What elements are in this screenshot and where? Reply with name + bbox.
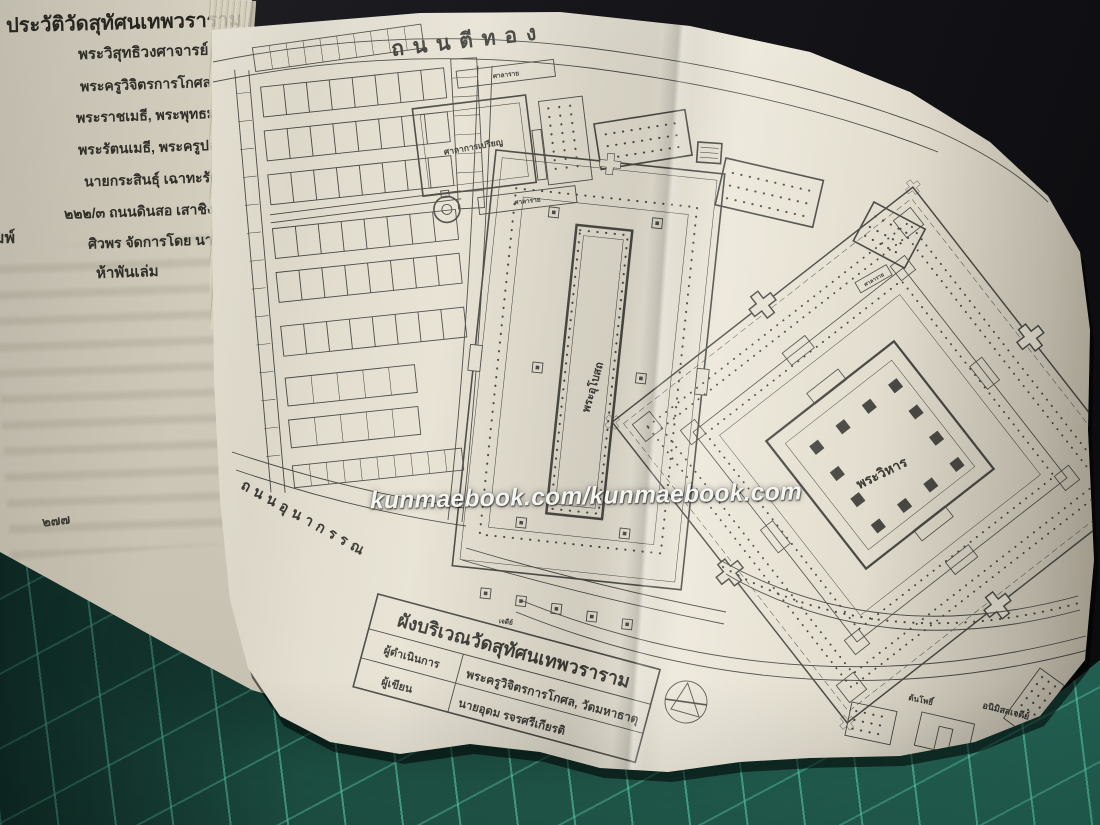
credit-line: ห้าพันเล่ม [96,259,159,285]
street-gate [697,142,722,164]
ubosot-label: พระอุโบสถ [578,360,607,414]
table-row-label: ผู้เขียน [380,675,415,697]
street-tithong-label: ถนนตีทอง [390,20,547,61]
ubosot-courtyard: พระอุโบสถ เจดีย์ [442,141,731,644]
bodhi-tree-label: ต้นโพธิ์ [908,691,936,707]
sala-rai-east-label: ศาลาราย [863,271,885,288]
inner-lanes [232,66,492,526]
wihan-complex: พระวิหาร ศาลาราย [593,168,1100,742]
sala-rai-bottom-label: ศาลาราย [514,196,541,206]
monks-quarters-block [223,19,520,495]
compass-rose [662,678,709,725]
wihan-label: พระวิหาร [854,454,910,492]
table-row-label: ผู้ดำเนินการ [382,644,441,672]
animis-chedi-label: อนิมิสสเจดีย์ [982,699,1031,721]
street-unakan-label: ถนนอุนากรรณ [238,478,371,561]
margin-text-fragment: มพ์ [0,226,15,251]
left-page-title: ประวัติวัดสุทัศนเทพวราราม [6,3,243,41]
sermon-hall-label: ศาลาการเปรียญ [443,137,504,158]
sala-rai-top-label: ศาลาราย [492,70,519,80]
sermon-hall-block: ศาลาการเปรียญ ศาลาราย ศาลาราย [408,56,595,225]
chedi-row-label: เจดีย์ [498,617,513,627]
page-number: ๒๗๗ [41,508,71,532]
photo-of-open-book: ประวัติวัดสุทัศนเทพวราราม พระวิสุทธิวงศา… [0,0,1100,825]
garden-plot [715,158,823,227]
credit-line: พระวิสุทธิวงศาจารย์ [78,38,209,67]
